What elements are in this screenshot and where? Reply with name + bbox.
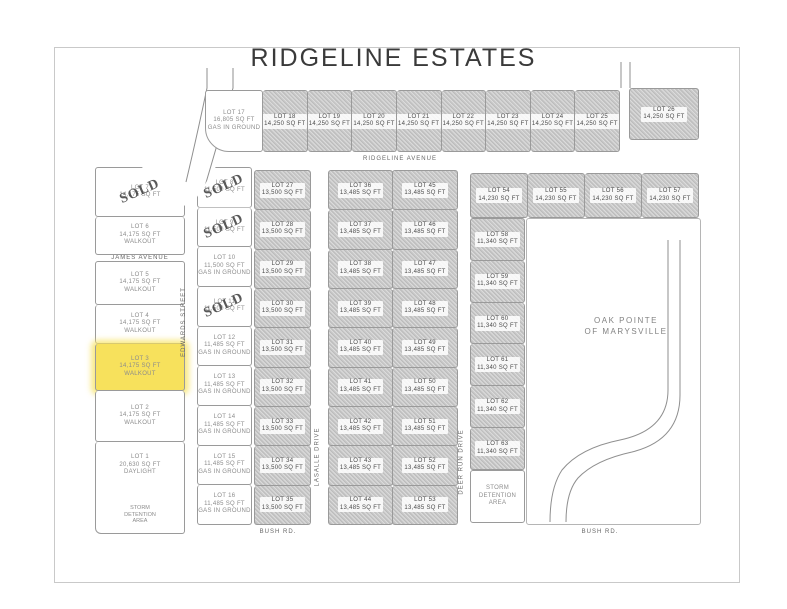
street-label-bush-rd-left: BUSH RD. [238, 529, 318, 535]
lot-lot-9: LOT 911,500 SQ FTSOLD [197, 208, 252, 248]
lot-lot-7: LOT 714,175 SQ FTSOLD [95, 167, 185, 217]
lot-label: LOT 3413,500 SQ FT [260, 458, 305, 473]
lot-label: LOT 1914,250 SQ FT [308, 114, 352, 129]
lot-lot-35: LOT 3513,500 SQ FT [254, 486, 311, 525]
lot-label: LOT 4813,485 SQ FT [402, 301, 447, 316]
street-label-bush-rd-right: BUSH RD. [560, 529, 640, 535]
lot-label: LOT 2713,500 SQ FT [260, 183, 305, 198]
lot-label: LOT 6211,340 SQ FT [475, 399, 520, 414]
top-row-lots: LOT 1716,805 SQ FTGAS IN GROUNDLOT 1814,… [205, 90, 620, 152]
lot-lot-56: LOT 5614,230 SQ FT [585, 173, 642, 218]
storm-detention-note: STORM DETENTION AREA [118, 505, 162, 525]
lot-label: LOT 3613,485 SQ FT [338, 183, 383, 198]
edwards-lot-column: LOT 811,500 SQ FTSOLDLOT 911,500 SQ FTSO… [197, 167, 252, 525]
lot-lot-51: LOT 5113,485 SQ FT [392, 407, 458, 446]
lot-label: LOT 1814,250 SQ FT [263, 114, 307, 129]
lot-lot-52: LOT 5213,485 SQ FT [392, 446, 458, 485]
lot-lot-59: LOT 5911,340 SQ FT [470, 261, 525, 303]
lot-lot-55: LOT 5514,230 SQ FT [528, 173, 585, 218]
lot-lot-44: LOT 4413,485 SQ FT [328, 486, 393, 525]
lot-lot-1: LOT 120,630 SQ FTDAYLIGHTSTORM DETENTION… [95, 442, 185, 534]
right-lot-column: LOT 5811,340 SQ FTLOT 5911,340 SQ FTLOT … [470, 218, 525, 470]
lot-lot-14: LOT 1411,485 SQ FTGAS IN GROUND [197, 406, 252, 446]
lot-lot-19: LOT 1914,250 SQ FT [308, 90, 353, 152]
lot-label: LOT 3513,500 SQ FT [260, 497, 305, 512]
right-lot-row: LOT 5414,230 SQ FTLOT 5514,230 SQ FTLOT … [470, 173, 699, 218]
lot-lot-57: LOT 5714,230 SQ FT [642, 173, 699, 218]
deer-run-drive-text: DEER RUN DRIVE [459, 429, 465, 494]
lot-lot-61: LOT 6111,340 SQ FT [470, 344, 525, 386]
lot-label: LOT 1311,485 SQ FTGAS IN GROUND [198, 374, 251, 397]
lot-label: LOT 2214,250 SQ FT [442, 114, 486, 129]
lot-lot-28: LOT 2813,500 SQ FT [254, 210, 311, 249]
lot-label: LOT 4413,485 SQ FT [338, 497, 383, 512]
lot-lot-8: LOT 811,500 SQ FTSOLD [197, 167, 252, 208]
lot-lot-58: LOT 5811,340 SQ FT [470, 218, 525, 261]
lot-label: LOT 1011,500 SQ FTGAS IN GROUND [198, 255, 251, 278]
lot-label: LOT 2813,500 SQ FT [260, 222, 305, 237]
lot-label: LOT 2614,250 SQ FT [641, 107, 686, 122]
lot-lot-36: LOT 3613,485 SQ FT [328, 170, 393, 210]
lot-label: LOT 120,630 SQ FTDAYLIGHT [119, 454, 160, 477]
lot-label: LOT 5811,340 SQ FT [475, 232, 520, 247]
lot-label: LOT 5013,485 SQ FT [402, 379, 447, 394]
lot-label: LOT 1411,485 SQ FTGAS IN GROUND [198, 414, 251, 437]
lot-lot-43: LOT 4313,485 SQ FT [328, 446, 393, 485]
lot-lot-3: LOT 314,175 SQ FTWALKOUT [95, 344, 185, 391]
lot-label: LOT 5113,485 SQ FT [402, 419, 447, 434]
lot-label: LOT 5213,485 SQ FT [402, 458, 447, 473]
lot-label: LOT 3313,500 SQ FT [260, 419, 305, 434]
lot-label: LOT 3813,485 SQ FT [338, 261, 383, 276]
lot-label: LOT 2414,250 SQ FT [531, 114, 575, 129]
lot-label: LOT 5614,230 SQ FT [590, 188, 635, 203]
lot-label: LOT 6311,340 SQ FT [475, 441, 520, 456]
lot-label: LOT 4713,485 SQ FT [402, 261, 447, 276]
lot-label: LOT 1611,485 SQ FTGAS IN GROUND [198, 493, 251, 516]
lot-lot-2: LOT 214,175 SQ FTWALKOUT [95, 391, 185, 442]
lot-lot-10: LOT 1011,500 SQ FTGAS IN GROUND [197, 247, 252, 287]
lot-label: LOT 1716,805 SQ FTGAS IN GROUND [208, 110, 261, 133]
street-label-deer-run-drive: DEER RUN DRIVE [454, 412, 470, 512]
lot-lot-21: LOT 2114,250 SQ FT [397, 90, 442, 152]
lot-label: LOT 5911,340 SQ FT [475, 274, 520, 289]
lot-lot-32: LOT 3213,500 SQ FT [254, 368, 311, 407]
lot-label: LOT 4313,485 SQ FT [338, 458, 383, 473]
sold-stamp: SOLD [198, 287, 251, 326]
lot-lot-46: LOT 4613,485 SQ FT [392, 210, 458, 249]
lot-lot-12: LOT 1211,485 SQ FTGAS IN GROUND [197, 327, 252, 367]
street-label-lasalle-drive: LASALLE DRIVE [310, 412, 326, 502]
page-title: RIDGELINE ESTATES [0, 44, 787, 73]
lot-label: LOT 3213,500 SQ FT [260, 379, 305, 394]
lot-lot-6: LOT 614,175 SQ FTWALKOUT [95, 217, 185, 255]
lot-lot-34: LOT 3413,500 SQ FT [254, 446, 311, 485]
lot-label: LOT 1511,485 SQ FTGAS IN GROUND [198, 454, 251, 477]
lot-label: LOT 3713,485 SQ FT [338, 222, 383, 237]
lot-label: LOT 5714,230 SQ FT [647, 188, 692, 203]
lot-label: LOT 4013,485 SQ FT [338, 340, 383, 355]
lot-lot-23: LOT 2314,250 SQ FT [486, 90, 531, 152]
lot-label: LOT 2514,250 SQ FT [575, 114, 619, 129]
top-right-lot: LOT 2614,250 SQ FT [629, 88, 699, 140]
left-lot-column: LOT 714,175 SQ FTSOLDLOT 614,175 SQ FTWA… [95, 167, 185, 525]
lot-label: STORM DETENTION AREA [477, 485, 519, 508]
lot-lot-41: LOT 4113,485 SQ FT [328, 368, 393, 407]
lot-lot-16: LOT 1611,485 SQ FTGAS IN GROUND [197, 485, 252, 525]
lot-lot-54: LOT 5414,230 SQ FT [470, 173, 528, 218]
lot-label: LOT 3913,485 SQ FT [338, 301, 383, 316]
center-lot-block-west: LOT 3613,485 SQ FTLOT 3713,485 SQ FTLOT … [328, 170, 393, 525]
lot-label: LOT 614,175 SQ FTWALKOUT [119, 224, 160, 247]
lot-lot-50: LOT 5013,485 SQ FT [392, 368, 458, 407]
sold-stamp: SOLD [96, 168, 184, 216]
detention-lot: STORM DETENTION AREA [470, 470, 525, 523]
lot-label: LOT 2014,250 SQ FT [352, 114, 396, 129]
oak-pointe-area [526, 218, 701, 525]
mid-lot-column: LOT 2713,500 SQ FTLOT 2813,500 SQ FTLOT … [254, 170, 311, 525]
lot-lot-13: LOT 1311,485 SQ FTGAS IN GROUND [197, 366, 252, 406]
lot-label: LOT 414,175 SQ FTWALKOUT [119, 313, 160, 336]
oak-pointe-line1: OAK POINTE [566, 315, 686, 326]
lot-lot-47: LOT 4713,485 SQ FT [392, 250, 458, 289]
lot-lot-45: LOT 4513,485 SQ FT [392, 170, 458, 210]
lot-lot-4: LOT 414,175 SQ FTWALKOUT [95, 305, 185, 344]
lot-label: LOT 2114,250 SQ FT [397, 114, 441, 129]
lot-lot-27: LOT 2713,500 SQ FT [254, 170, 311, 210]
lot-lot-25: LOT 2514,250 SQ FT [575, 90, 620, 152]
lot-lot-40: LOT 4013,485 SQ FT [328, 328, 393, 367]
street-label-edwards-street: EDWARDS STREET [176, 283, 192, 361]
lot-lot-30: LOT 3013,500 SQ FT [254, 289, 311, 328]
lot-label: LOT 4113,485 SQ FT [338, 379, 383, 394]
lot-label: LOT 2314,250 SQ FT [486, 114, 530, 129]
lot-label: LOT 4513,485 SQ FT [402, 183, 447, 198]
lot-label: LOT 5414,230 SQ FT [476, 188, 521, 203]
lot-lot-22: LOT 2214,250 SQ FT [442, 90, 487, 152]
lot-lot-49: LOT 4913,485 SQ FT [392, 328, 458, 367]
lot-label: LOT 5514,230 SQ FT [533, 188, 578, 203]
lot-label: LOT 514,175 SQ FTWALKOUT [119, 272, 160, 295]
lot-lot-33: LOT 3313,500 SQ FT [254, 407, 311, 446]
lot-label: LOT 1211,485 SQ FTGAS IN GROUND [198, 335, 251, 358]
lot-lot-31: LOT 3113,500 SQ FT [254, 328, 311, 367]
lot-lot-38: LOT 3813,485 SQ FT [328, 250, 393, 289]
lot-lot-48: LOT 4813,485 SQ FT [392, 289, 458, 328]
lot-label: LOT 4213,485 SQ FT [338, 419, 383, 434]
edwards-street-text: EDWARDS STREET [181, 287, 187, 357]
lot-lot-11: LOT 1111,500 SQ FTSOLD [197, 287, 252, 327]
lot-lot-24: LOT 2414,250 SQ FT [531, 90, 576, 152]
lot-lot-39: LOT 3913,485 SQ FT [328, 289, 393, 328]
street-label-ridgeline-avenue: RIDGELINE AVENUE [300, 156, 500, 162]
lot-label: LOT 314,175 SQ FTWALKOUT [119, 356, 160, 379]
lot-lot-37: LOT 3713,485 SQ FT [328, 210, 393, 249]
center-lot-block-east: LOT 4513,485 SQ FTLOT 4613,485 SQ FTLOT … [392, 170, 458, 525]
lot-label: LOT 6011,340 SQ FT [475, 316, 520, 331]
plat-map-page: RIDGELINE ESTATES LOT 1716,805 SQ FTGAS … [0, 0, 787, 609]
lot-lot-26: LOT 2614,250 SQ FT [629, 88, 699, 140]
lot-label: LOT 3113,500 SQ FT [260, 340, 305, 355]
lot-lot-29: LOT 2913,500 SQ FT [254, 250, 311, 289]
lasalle-drive-text: LASALLE DRIVE [315, 427, 321, 486]
lot-label: LOT 6111,340 SQ FT [475, 357, 520, 372]
lot-lot-15: LOT 1511,485 SQ FTGAS IN GROUND [197, 446, 252, 486]
lot-label: LOT 4613,485 SQ FT [402, 222, 447, 237]
lot-label: LOT 2913,500 SQ FT [260, 261, 305, 276]
lot-label: LOT 3013,500 SQ FT [260, 301, 305, 316]
oak-pointe-line2: OF MARYSVILLE [566, 326, 686, 337]
sold-stamp: SOLD [198, 208, 251, 247]
lot-lot-18: LOT 1814,250 SQ FT [263, 90, 308, 152]
lot-lot-62: LOT 6211,340 SQ FT [470, 386, 525, 428]
lot-lot-20: LOT 2014,250 SQ FT [352, 90, 397, 152]
sold-stamp: SOLD [198, 168, 251, 207]
lot-label: LOT 4913,485 SQ FT [402, 340, 447, 355]
lot-label: LOT 214,175 SQ FTWALKOUT [119, 405, 160, 428]
lot-lot-17: LOT 1716,805 SQ FTGAS IN GROUND [205, 90, 263, 152]
lot-lot-60: LOT 6011,340 SQ FT [470, 303, 525, 345]
lot-lot-63: LOT 6311,340 SQ FT [470, 428, 525, 470]
oak-pointe-label: OAK POINTE OF MARYSVILLE [566, 315, 686, 337]
lot-lot-53: LOT 5313,485 SQ FT [392, 486, 458, 525]
lot-lot-42: LOT 4213,485 SQ FT [328, 407, 393, 446]
lot-storm-detention-area: STORM DETENTION AREA [470, 470, 525, 523]
lot-label: LOT 5313,485 SQ FT [402, 497, 447, 512]
lot-lot-5: LOT 514,175 SQ FTWALKOUT [95, 261, 185, 305]
